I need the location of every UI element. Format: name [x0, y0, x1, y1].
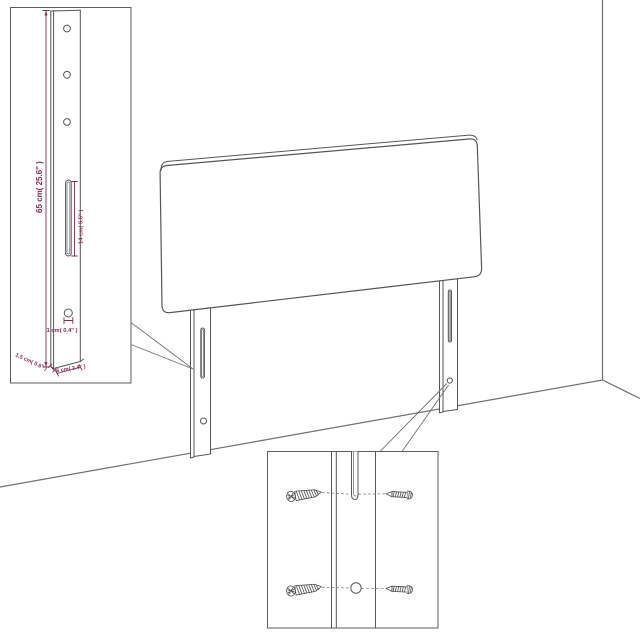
post-top-hole-1 — [64, 25, 71, 32]
floor-line-right — [603, 380, 640, 399]
callout-line-left-lower — [131, 345, 193, 370]
callout-line-left-upper — [131, 323, 193, 370]
post-top-hole-3 — [64, 119, 71, 126]
hole-closeup — [351, 583, 361, 593]
left-leg-side-face — [191, 309, 195, 458]
post-top-hole-2 — [64, 71, 71, 78]
post-slot — [66, 180, 72, 256]
right-leg — [440, 275, 458, 413]
slot-closeup — [352, 452, 359, 500]
left-leg-slot — [201, 328, 205, 378]
callout-lines-left — [131, 323, 193, 370]
screw-detail-inset — [268, 452, 439, 629]
left-leg-hole — [201, 418, 207, 424]
callout-line-right-inner — [402, 385, 449, 452]
dimension-label-slot-length: 14 cm( 5.5" ) — [79, 210, 85, 244]
product-diagram-canvas: 65 cm( 25.6" ) 14 cm( 5.5" ) 1 cm( 0.4" … — [0, 0, 640, 640]
headboard-panel — [160, 135, 482, 313]
dimension-label-leg-height: 65 cm( 25.6" ) — [35, 161, 44, 213]
dimension-label-hole-diameter: 1 cm( 0.4" ) — [47, 328, 78, 334]
headboard-assembly-diagram: 65 cm( 25.6" ) 14 cm( 5.5" ) 1 cm( 0.4" … — [0, 0, 640, 640]
right-leg-hole — [447, 378, 452, 383]
post-bottom-hole — [64, 309, 72, 317]
left-leg — [191, 307, 211, 459]
leg-detail-inset: 65 cm( 25.6" ) 14 cm( 5.5" ) 1 cm( 0.4" … — [11, 8, 132, 384]
headboard-front-face — [160, 139, 482, 313]
right-leg-side-face — [440, 278, 444, 413]
